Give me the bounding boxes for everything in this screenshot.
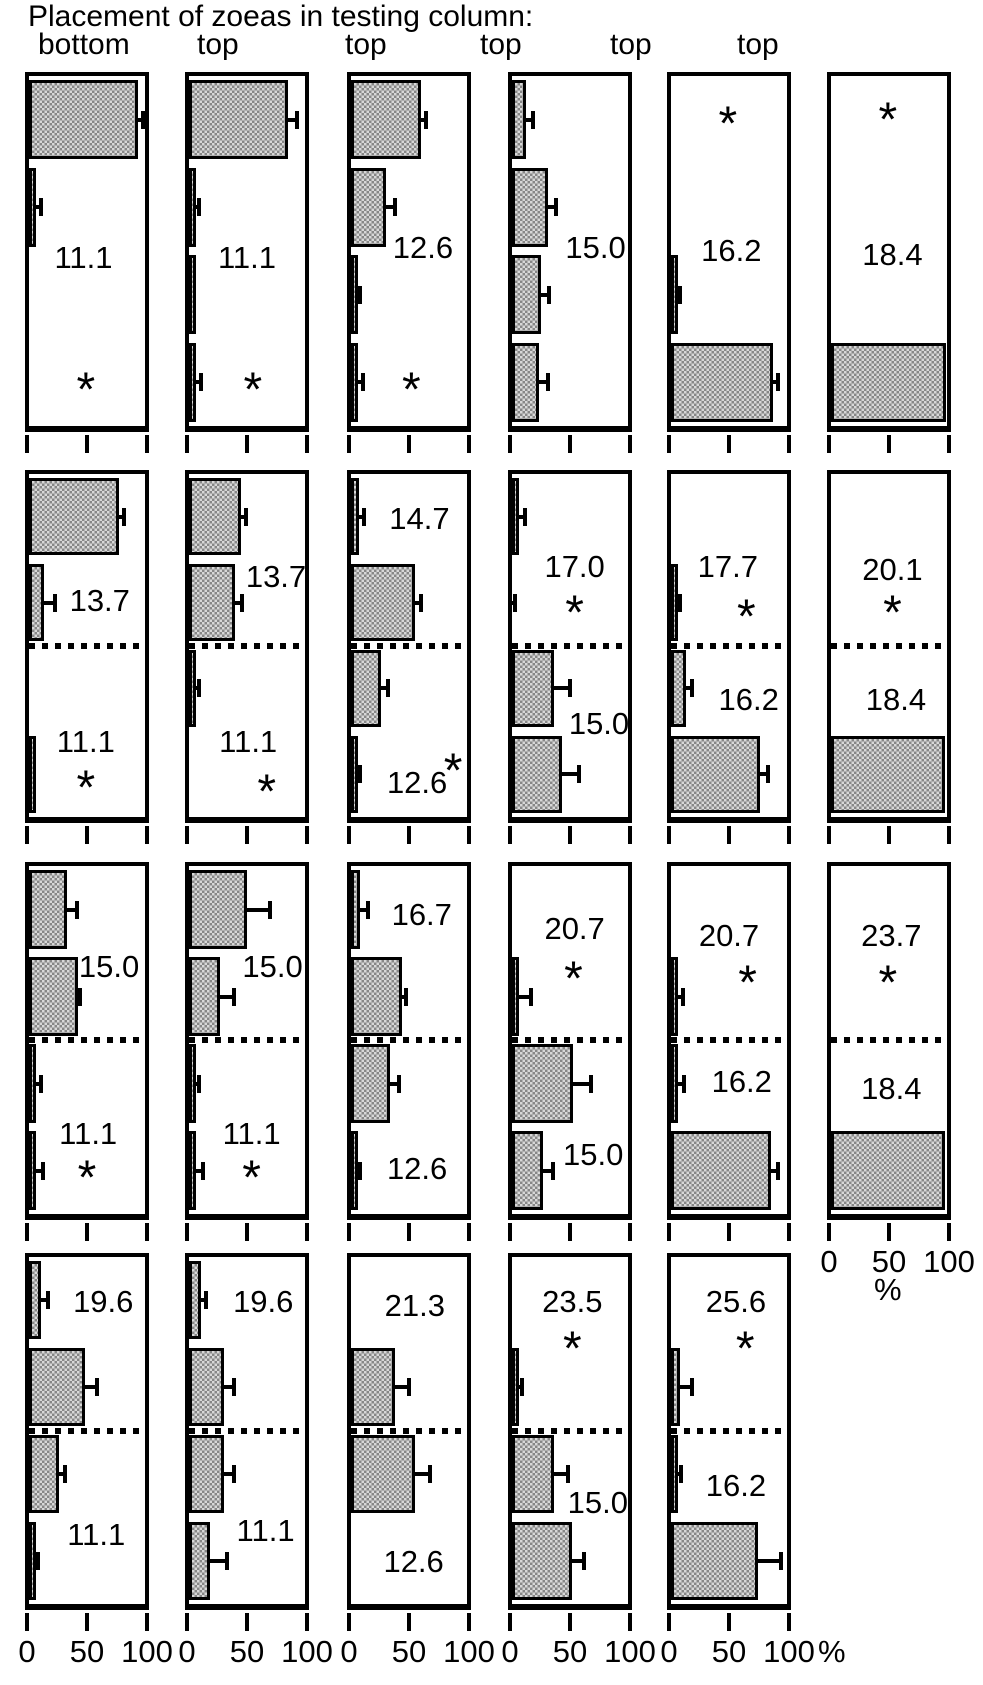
bar [29, 564, 44, 641]
temperature-label: 23.7 [861, 918, 921, 954]
error-bar-cap [776, 373, 780, 391]
bar [512, 168, 548, 247]
panel-r1c6: 18.4* [827, 72, 951, 432]
temperature-label: 16.2 [701, 233, 761, 269]
axis-tick [827, 435, 831, 453]
axis-tick [568, 826, 572, 844]
column-header-1: bottom [38, 28, 130, 62]
panel-r4c3: 21.312.6 [347, 1253, 471, 1610]
error-bar [247, 908, 270, 912]
axis-tick-label: 50 [392, 1634, 426, 1670]
error-bar-cap [766, 765, 770, 783]
bar [29, 957, 78, 1035]
error-bar-cap [141, 111, 145, 129]
temperature-label: 16.2 [706, 1468, 766, 1504]
error-bar-cap [232, 1378, 236, 1396]
thermocline-dotted-line [512, 1428, 628, 1434]
error-bar-cap [566, 1465, 570, 1483]
axis-tick-label: 100 [443, 1634, 495, 1670]
temperature-label: 12.6 [387, 765, 447, 801]
temperature-label: 19.6 [233, 1284, 293, 1320]
panel-r3c6: 23.718.4* [827, 862, 951, 1220]
significance-asterisk: * [564, 956, 583, 1004]
temperature-label: 20.7 [699, 918, 759, 954]
bar [29, 1044, 36, 1122]
axis-tick [568, 435, 572, 453]
error-bar-cap [513, 594, 517, 612]
significance-asterisk: * [444, 748, 463, 796]
significance-asterisk: * [243, 366, 262, 414]
panel-r1c4: 15.0 [508, 72, 632, 432]
thermocline-dotted-line [189, 1428, 305, 1434]
bar [512, 80, 526, 159]
axis-tick [667, 435, 671, 453]
error-bar-cap [577, 765, 581, 783]
panel-r2c6: 20.118.4* [827, 470, 951, 823]
bar [351, 343, 358, 422]
error-bar-cap [404, 988, 408, 1006]
bar [189, 80, 288, 159]
axis-tick [467, 1613, 471, 1631]
percent-sign-bottom: % [818, 1634, 846, 1670]
axis-tick [145, 435, 149, 453]
error-bar-cap [386, 679, 390, 697]
significance-asterisk: * [565, 590, 584, 638]
temperature-label: 16.2 [712, 1064, 772, 1100]
bar [351, 1044, 390, 1122]
bar [189, 255, 196, 334]
axis-tick-label: 0 [501, 1634, 518, 1670]
axis-tick [185, 826, 189, 844]
bar [29, 1435, 59, 1513]
bar [831, 736, 945, 813]
bar [512, 1522, 572, 1600]
axis-tick [887, 826, 891, 844]
error-bar-cap [531, 111, 535, 129]
axis-tick [305, 826, 309, 844]
temperature-label: 18.4 [862, 237, 922, 273]
error-bar-cap [582, 1552, 586, 1570]
bar [512, 1435, 554, 1513]
panel-r3c4: 20.715.0* [508, 862, 632, 1220]
axis-tick [727, 826, 731, 844]
bar [189, 564, 235, 641]
temperature-label: 13.7 [70, 583, 130, 619]
panel-r1c2: 11.1* [185, 72, 309, 432]
axis-tick [667, 1223, 671, 1241]
temperature-label: 11.1 [59, 1116, 117, 1152]
error-bar-cap [589, 1075, 593, 1093]
temperature-label: 15.0 [79, 949, 139, 985]
axis-tick [245, 435, 249, 453]
error-bar-cap [362, 508, 366, 526]
axis-tick-label: 100 [281, 1634, 333, 1670]
axis-tick [25, 1223, 29, 1241]
axis-tick [827, 826, 831, 844]
axis-tick [25, 1613, 29, 1631]
axis-tick [407, 435, 411, 453]
axis-tick [85, 435, 89, 453]
thermocline-dotted-line [351, 643, 467, 649]
axis-tick [185, 1613, 189, 1631]
axis-tick [245, 1613, 249, 1631]
bar [189, 1435, 224, 1513]
bar [671, 1131, 771, 1209]
panel-r4c2: 19.611.1 [185, 1253, 309, 1610]
temperature-label: 12.6 [387, 1151, 447, 1187]
temperature-label: 15.0 [242, 949, 302, 985]
significance-asterisk: * [736, 1326, 755, 1374]
error-bar [758, 1559, 781, 1563]
bar [189, 650, 196, 727]
significance-asterisk: * [878, 97, 897, 145]
thermocline-dotted-line [189, 643, 305, 649]
error-bar-cap [199, 373, 203, 391]
error-bar-cap [197, 679, 201, 697]
error-bar-cap [424, 111, 428, 129]
axis-tick [508, 826, 512, 844]
bar [351, 957, 402, 1035]
error-bar-cap [39, 198, 43, 216]
temperature-label: 20.7 [544, 911, 604, 947]
significance-asterisk: * [76, 366, 95, 414]
error-bar-cap [122, 508, 126, 526]
axis-tick [407, 826, 411, 844]
panel-r4c5: 25.616.2* [667, 1253, 791, 1610]
temperature-label: 18.4 [866, 682, 926, 718]
error-bar-cap [225, 1552, 229, 1570]
bar [671, 957, 678, 1035]
bar [671, 650, 686, 727]
column-header-2: top [197, 28, 239, 62]
axis-tick [347, 826, 351, 844]
error-bar-cap [407, 1378, 411, 1396]
axis-tick [347, 1613, 351, 1631]
significance-asterisk: * [242, 1154, 261, 1202]
error-bar-cap [358, 765, 362, 783]
temperature-label: 11.1 [237, 1513, 295, 1549]
thermocline-dotted-line [671, 643, 787, 649]
bar [29, 1131, 36, 1209]
thermocline-dotted-line [831, 643, 947, 649]
axis-tick [467, 435, 471, 453]
axis-tick-label: 100 [604, 1634, 656, 1670]
temperature-label: 15.0 [565, 230, 625, 266]
bar [29, 168, 36, 247]
bar [351, 650, 381, 727]
error-bar-cap [678, 286, 682, 304]
error-bar-cap [244, 508, 248, 526]
axis-tick [947, 435, 951, 453]
error-bar-cap [78, 988, 82, 1006]
bar [351, 80, 421, 159]
temperature-label: 17.7 [698, 549, 758, 585]
bar [351, 564, 415, 641]
bar [29, 870, 67, 948]
error-bar-cap [204, 1291, 208, 1309]
axis-tick [727, 435, 731, 453]
error-bar-cap [678, 594, 682, 612]
thermocline-dotted-line [671, 1037, 787, 1043]
error-bar-cap [95, 1378, 99, 1396]
error-bar-cap [268, 901, 272, 919]
axis-tick-label: 50 [712, 1634, 746, 1670]
bar [351, 1348, 395, 1426]
error-bar-cap [358, 286, 362, 304]
bar [29, 1522, 36, 1600]
axis-tick [628, 1223, 632, 1241]
bar [351, 736, 358, 813]
axis-tick [245, 826, 249, 844]
temperature-label: 21.3 [385, 1288, 445, 1324]
panel-r3c2: 15.011.1* [185, 862, 309, 1220]
axis-tick [85, 1223, 89, 1241]
axis-tick [185, 1223, 189, 1241]
significance-asterisk: * [878, 959, 897, 1007]
panel-r2c2: 13.711.1* [185, 470, 309, 823]
temperature-label: 19.6 [73, 1284, 133, 1320]
bar [671, 1348, 680, 1426]
bar [671, 1044, 678, 1122]
panel-r3c1: 15.011.1* [25, 862, 149, 1220]
significance-asterisk: * [257, 768, 276, 816]
significance-asterisk: * [402, 366, 421, 414]
thermocline-dotted-line [351, 1428, 467, 1434]
error-bar-cap [397, 1075, 401, 1093]
error-bar-cap [523, 508, 527, 526]
column-header-4: top [480, 28, 522, 62]
bar [512, 1348, 519, 1426]
panel-r2c5: 17.716.2* [667, 470, 791, 823]
bar [671, 1435, 678, 1513]
thermocline-dotted-line [831, 1037, 947, 1043]
axis-tick-label: 0 [18, 1634, 35, 1670]
bar [512, 957, 519, 1035]
error-bar-cap [41, 1162, 45, 1180]
error-bar-cap [679, 1465, 683, 1483]
axis-tick [727, 1613, 731, 1631]
thermocline-dotted-line [29, 1037, 145, 1043]
bar [671, 1522, 758, 1600]
bar [512, 255, 541, 334]
panel-r1c5: 16.2* [667, 72, 791, 432]
temperature-label: 12.6 [383, 1544, 443, 1580]
axis-tick [467, 826, 471, 844]
axis-tick [185, 435, 189, 453]
temperature-label: 11.1 [219, 724, 277, 760]
panel-r1c3: 12.6* [347, 72, 471, 432]
error-bar-cap [520, 1378, 524, 1396]
axis-tick [727, 1223, 731, 1241]
bar [671, 564, 678, 641]
bar [671, 343, 773, 422]
axis-tick [568, 1223, 572, 1241]
thermocline-dotted-line [351, 1037, 467, 1043]
axis-tick [305, 1223, 309, 1241]
column-header-5: top [610, 28, 652, 62]
bar [189, 1348, 224, 1426]
bar [351, 870, 360, 948]
axis-tick [305, 1613, 309, 1631]
significance-asterisk: * [718, 100, 737, 148]
axis-tick [628, 1613, 632, 1631]
error-bar-cap [240, 594, 244, 612]
axis-tick [568, 1613, 572, 1631]
axis-tick [947, 826, 951, 844]
bar [512, 1131, 543, 1209]
axis-tick [347, 435, 351, 453]
error-bar-cap [546, 373, 550, 391]
bar [29, 1348, 85, 1426]
error-bar-cap [197, 1075, 201, 1093]
axis-tick [347, 1223, 351, 1241]
panel-r4c4: 23.515.0* [508, 1253, 632, 1610]
significance-asterisk: * [563, 1326, 582, 1374]
error-bar-cap [36, 1552, 40, 1570]
temperature-label: 15.0 [563, 1137, 623, 1173]
error-bar-cap [63, 1465, 67, 1483]
error-bar-cap [232, 1465, 236, 1483]
thermocline-dotted-line [512, 643, 628, 649]
axis-tick [787, 435, 791, 453]
axis-tick [407, 1223, 411, 1241]
error-bar-cap [682, 1075, 686, 1093]
temperature-label: 11.1 [223, 1116, 281, 1152]
axis-tick [145, 826, 149, 844]
error-bar-cap [393, 198, 397, 216]
error-bar-cap [75, 901, 79, 919]
temperature-label: 13.7 [246, 559, 306, 595]
temperature-label: 11.1 [57, 724, 115, 760]
panel-r2c1: 13.711.1* [25, 470, 149, 823]
figure-canvas: Placement of zoeas in testing column: bo… [0, 0, 983, 1685]
axis-tick [787, 1613, 791, 1631]
axis-tick-label: 50 [230, 1634, 264, 1670]
error-bar-cap [568, 679, 572, 697]
thermocline-dotted-line [29, 1428, 145, 1434]
temperature-label: 20.1 [862, 552, 922, 588]
error-bar-cap [428, 1465, 432, 1483]
thermocline-dotted-line [29, 643, 145, 649]
thermocline-dotted-line [671, 1428, 787, 1434]
axis-tick [305, 435, 309, 453]
error-bar-cap [358, 1162, 362, 1180]
axis-tick [145, 1613, 149, 1631]
column-header-6: top [737, 28, 779, 62]
bar [29, 1261, 41, 1339]
temperature-label: 23.5 [542, 1284, 602, 1320]
error-bar-cap [554, 198, 558, 216]
bar [29, 478, 119, 555]
bar [351, 1435, 415, 1513]
axis-tick [667, 826, 671, 844]
percent-sign-right: % [874, 1272, 902, 1308]
error-bar-cap [690, 679, 694, 697]
thermocline-dotted-line [189, 1037, 305, 1043]
bar [351, 168, 386, 247]
axis-tick [628, 435, 632, 453]
bar [512, 343, 539, 422]
column-header-3: top [345, 28, 387, 62]
bar [189, 168, 196, 247]
axis-tick [628, 826, 632, 844]
error-bar-cap [529, 988, 533, 1006]
axis-tick [667, 1613, 671, 1631]
temperature-label: 25.6 [706, 1284, 766, 1320]
bar [189, 1131, 196, 1209]
axis-tick-label: 0 [660, 1634, 677, 1670]
error-bar-cap [53, 594, 57, 612]
axis-tick-label: 100 [121, 1634, 173, 1670]
bar [351, 255, 358, 334]
error-bar-cap [690, 1378, 694, 1396]
temperature-label: 15.0 [568, 1485, 628, 1521]
axis-tick [787, 1223, 791, 1241]
panel-r4c1: 19.611.1 [25, 1253, 149, 1610]
temperature-label: 16.2 [719, 682, 779, 718]
axis-tick [25, 435, 29, 453]
error-bar-cap [551, 1162, 555, 1180]
bar [351, 1131, 358, 1209]
temperature-label: 18.4 [861, 1071, 921, 1107]
panel-r3c3: 16.712.6 [347, 862, 471, 1220]
bar [512, 1044, 573, 1122]
bar [189, 957, 220, 1035]
temperature-label: 11.1 [54, 240, 112, 276]
axis-tick [787, 826, 791, 844]
axis-tick-label: 0 [340, 1634, 357, 1670]
temperature-label: 14.7 [389, 501, 449, 537]
temperature-label: 11.1 [67, 1517, 125, 1553]
axis-tick [887, 1223, 891, 1241]
bar [189, 1044, 196, 1122]
error-bar-cap [547, 286, 551, 304]
bar [512, 478, 519, 555]
axis-tick [887, 435, 891, 453]
error-bar-cap [776, 1162, 780, 1180]
axis-tick-label: 50 [553, 1634, 587, 1670]
axis-tick [407, 1613, 411, 1631]
bar [671, 255, 678, 334]
axis-tick [25, 826, 29, 844]
bar [831, 1131, 945, 1209]
error-bar-cap [39, 1075, 43, 1093]
axis-tick [508, 435, 512, 453]
temperature-label: 17.0 [544, 549, 604, 585]
axis-tick [508, 1223, 512, 1241]
bar [189, 870, 247, 948]
axis-tick [947, 1223, 951, 1241]
bar [512, 736, 562, 813]
temperature-label: 15.0 [569, 706, 629, 742]
bar [671, 736, 760, 813]
bar [29, 80, 138, 159]
significance-asterisk: * [883, 590, 902, 638]
significance-asterisk: * [738, 959, 757, 1007]
bar [189, 1261, 201, 1339]
temperature-label: 16.7 [392, 897, 452, 933]
axis-tick [85, 1613, 89, 1631]
error-bar-cap [295, 111, 299, 129]
thermocline-dotted-line [512, 1037, 628, 1043]
axis-tick-label: 0 [178, 1634, 195, 1670]
axis-tick [467, 1223, 471, 1241]
axis-tick [85, 826, 89, 844]
panel-r2c4: 17.015.0* [508, 470, 632, 823]
bar [512, 650, 554, 727]
error-bar-cap [366, 901, 370, 919]
axis-tick [145, 1223, 149, 1241]
